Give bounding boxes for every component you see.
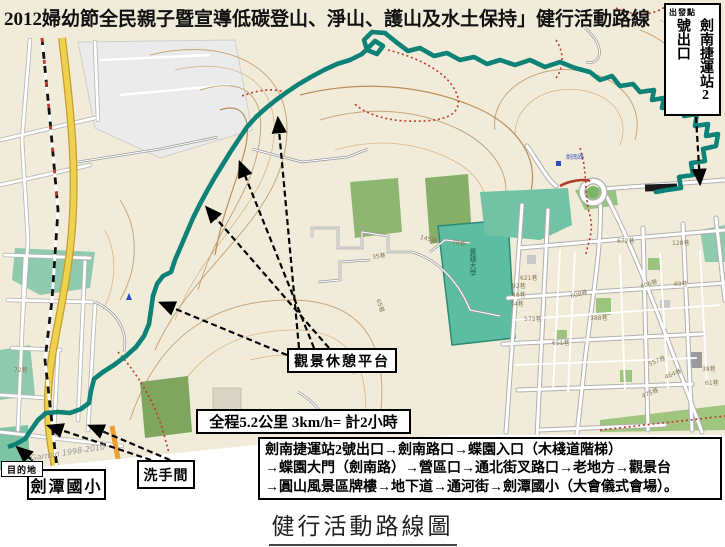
campus-area — [438, 220, 515, 345]
street-label: 672巷 — [617, 236, 634, 245]
distance-label-box: 全程5.2公里 3km/h= 計2小時 — [196, 409, 411, 434]
campus-label: 實踐大學 — [468, 248, 478, 276]
route-step-line: →蝶園大門（劍南路）→營區口→通北街叉路口→老地方→觀景台 — [265, 460, 715, 478]
street-label: 54巷 — [510, 299, 524, 308]
hiking-route-map-page: 2012婦幼節全民親子暨宣導低碳登山、淨山、護山及水土保持」健行活動路線 出發點… — [0, 0, 725, 547]
start-station-label: 劍南捷運站 — [698, 18, 713, 88]
start-tag-label: 出發點 — [669, 7, 696, 18]
station-marker-icon — [556, 161, 561, 166]
route-description-box: 劍南捷運站2號出口→劍南路口→蝶園入口（木棧道階梯） →蝶園大門（劍南路）→營區… — [258, 437, 722, 500]
street-label: 72巷 — [14, 365, 28, 374]
road-name-label: 劍南路 — [566, 152, 584, 161]
street-label: 46巷 — [512, 290, 526, 299]
street-label: 92巷 — [512, 281, 526, 290]
street-label: 38巷 — [702, 364, 716, 373]
street-label: 573巷 — [524, 314, 541, 323]
street-label: 61巷 — [705, 378, 719, 387]
restroom-label-box: 洗手間 — [137, 460, 195, 489]
platform-label-box: 觀景休憩平台 — [287, 348, 397, 373]
street-label: 128巷 — [672, 238, 689, 247]
street-label: 651巷 — [552, 338, 569, 347]
start-point-box: 出發點 劍南捷運站2號出口 — [664, 3, 721, 116]
route-step-line: 劍南捷運站2號出口→劍南路口→蝶園入口（木棧道階梯） — [265, 442, 715, 460]
street-label: 69巷 — [674, 279, 688, 288]
map-caption: 健行活動路線圖 — [269, 507, 457, 546]
street-label: 588巷 — [590, 313, 607, 322]
page-title: 2012婦幼節全民親子暨宣導低碳登山、淨山、護山及水土保持」健行活動路線 — [4, 4, 664, 31]
route-step-line: →圓山風景區牌樓→地下道→通河街→劍潭國小（大會儀式會場）。 — [265, 479, 715, 497]
destination-label-box: 目的地 — [1, 461, 43, 477]
